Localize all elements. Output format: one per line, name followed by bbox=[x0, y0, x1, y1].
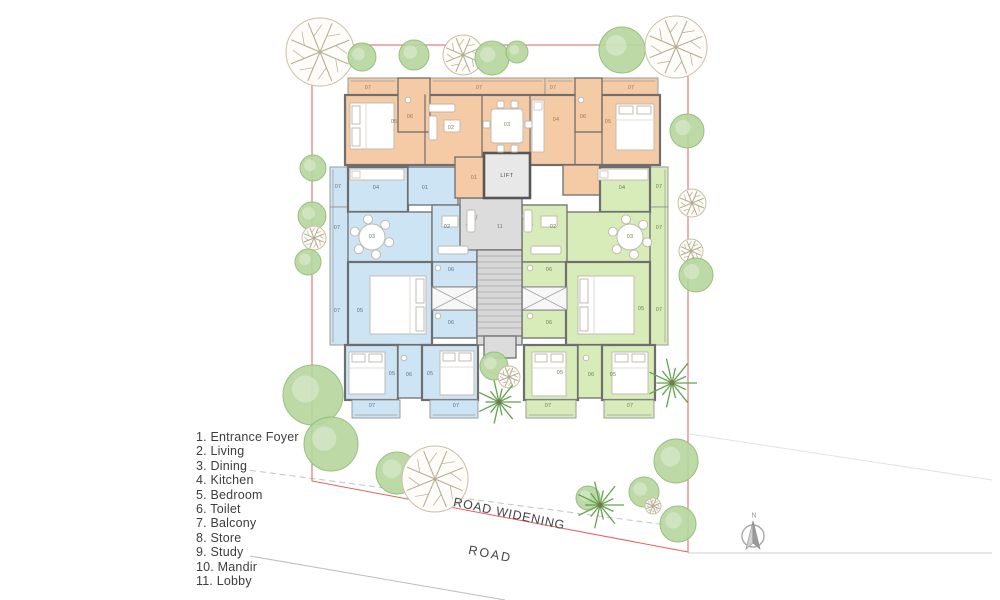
tree-icon bbox=[678, 189, 706, 217]
legend-item: 2. Living bbox=[196, 444, 299, 458]
tree-icon bbox=[649, 359, 697, 408]
kitchen-counter-icon bbox=[350, 169, 404, 180]
bed-icon bbox=[350, 103, 394, 149]
bed-icon bbox=[616, 104, 654, 150]
bed-icon bbox=[612, 352, 648, 394]
tree-icon bbox=[645, 498, 661, 514]
toilet-fixture-icon bbox=[405, 97, 411, 103]
staircase bbox=[477, 250, 522, 336]
tree-icon bbox=[302, 226, 326, 250]
bed-icon bbox=[578, 276, 634, 334]
tree-icon bbox=[654, 439, 698, 483]
toilet-fixture-icon bbox=[583, 355, 589, 361]
toilet-fixture-icon bbox=[401, 355, 407, 361]
legend-item: 5. Bedroom bbox=[196, 488, 299, 502]
legend-item: 8. Store bbox=[196, 531, 299, 545]
legend-item: 1. Entrance Foyer bbox=[196, 430, 299, 444]
legend-item: 6. Toilet bbox=[196, 502, 299, 516]
toilet-fixture-icon bbox=[435, 265, 441, 271]
legend-item: 9. Study bbox=[196, 545, 299, 559]
bed-icon bbox=[349, 352, 385, 394]
tree-icon bbox=[475, 41, 509, 75]
tree-icon bbox=[399, 40, 429, 70]
tree-icon bbox=[348, 43, 376, 71]
north-letter: N bbox=[751, 513, 756, 520]
north-arrow-icon bbox=[742, 521, 764, 549]
legend-item: 3. Dining bbox=[196, 459, 299, 473]
tree-icon bbox=[479, 381, 521, 424]
tree-icon bbox=[645, 16, 707, 78]
site-plan-page: .ro{fill:#f5cba6;stroke:#6e6e6e;stroke-w… bbox=[0, 0, 1000, 600]
tree-icon bbox=[295, 249, 321, 275]
tree-icon bbox=[660, 506, 696, 542]
toilet-fixture-icon bbox=[527, 313, 533, 319]
kitchen-counter-icon bbox=[598, 169, 648, 180]
kitchen-counter-icon bbox=[532, 100, 544, 152]
legend-list: 1. Entrance Foyer2. Living3. Dining4. Ki… bbox=[196, 430, 299, 588]
lift-label: LIFT bbox=[500, 173, 513, 179]
legend-item: 10. Mandir bbox=[196, 560, 299, 574]
tree-icon bbox=[300, 155, 326, 181]
toilet-fixture-icon bbox=[435, 313, 441, 319]
tree-icon bbox=[506, 41, 528, 63]
bed-icon bbox=[440, 351, 474, 395]
tree-icon bbox=[283, 365, 343, 425]
tree-icon bbox=[286, 18, 354, 86]
legend-item: 4. Kitchen bbox=[196, 473, 299, 487]
tree-icon bbox=[599, 27, 645, 73]
legend-item: 11. Lobby bbox=[196, 574, 299, 588]
bed-icon bbox=[370, 276, 426, 334]
toilet-fixture-icon bbox=[527, 265, 533, 271]
tree-icon bbox=[304, 417, 358, 471]
tree-icon bbox=[670, 114, 704, 148]
tree-icon bbox=[679, 258, 713, 292]
bed-icon bbox=[532, 352, 566, 396]
toilet-fixture-icon bbox=[578, 97, 584, 103]
tree-icon bbox=[498, 366, 520, 388]
legend-item: 7. Balcony bbox=[196, 516, 299, 530]
